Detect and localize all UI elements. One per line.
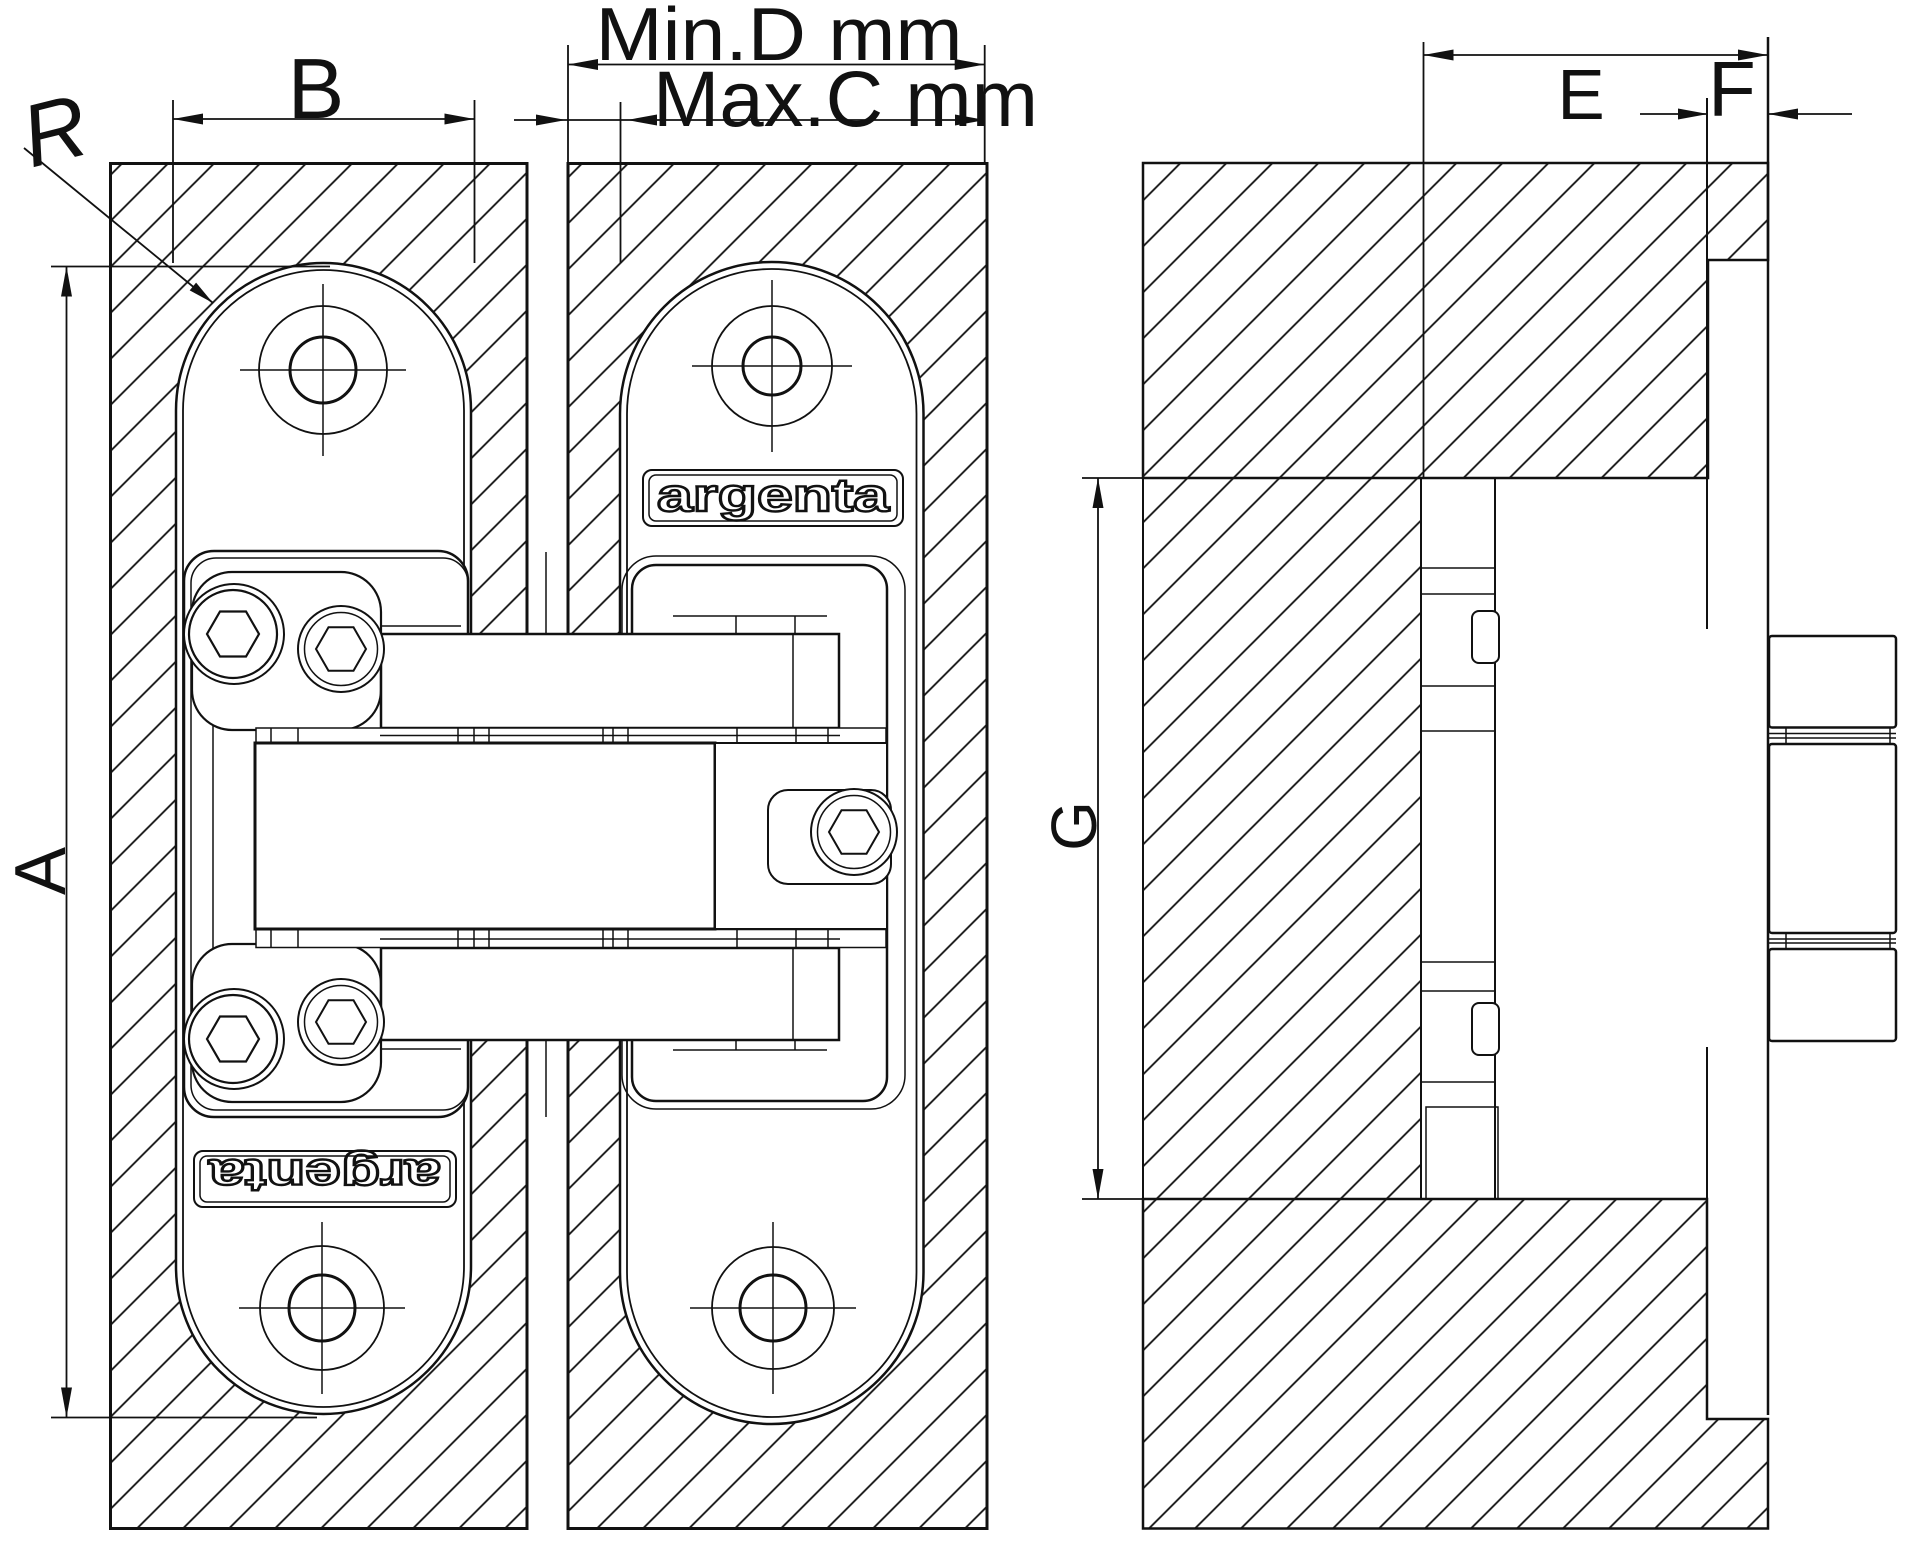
svg-text:argenta: argenta — [208, 1150, 441, 1202]
svg-text:Max.C mm: Max.C mm — [653, 54, 1038, 143]
svg-text:A: A — [1, 847, 81, 895]
svg-text:F: F — [1708, 45, 1756, 133]
svg-text:B: B — [288, 42, 345, 137]
svg-text:G: G — [1038, 801, 1110, 851]
svg-text:E: E — [1557, 56, 1604, 135]
svg-text:argenta: argenta — [657, 469, 890, 521]
